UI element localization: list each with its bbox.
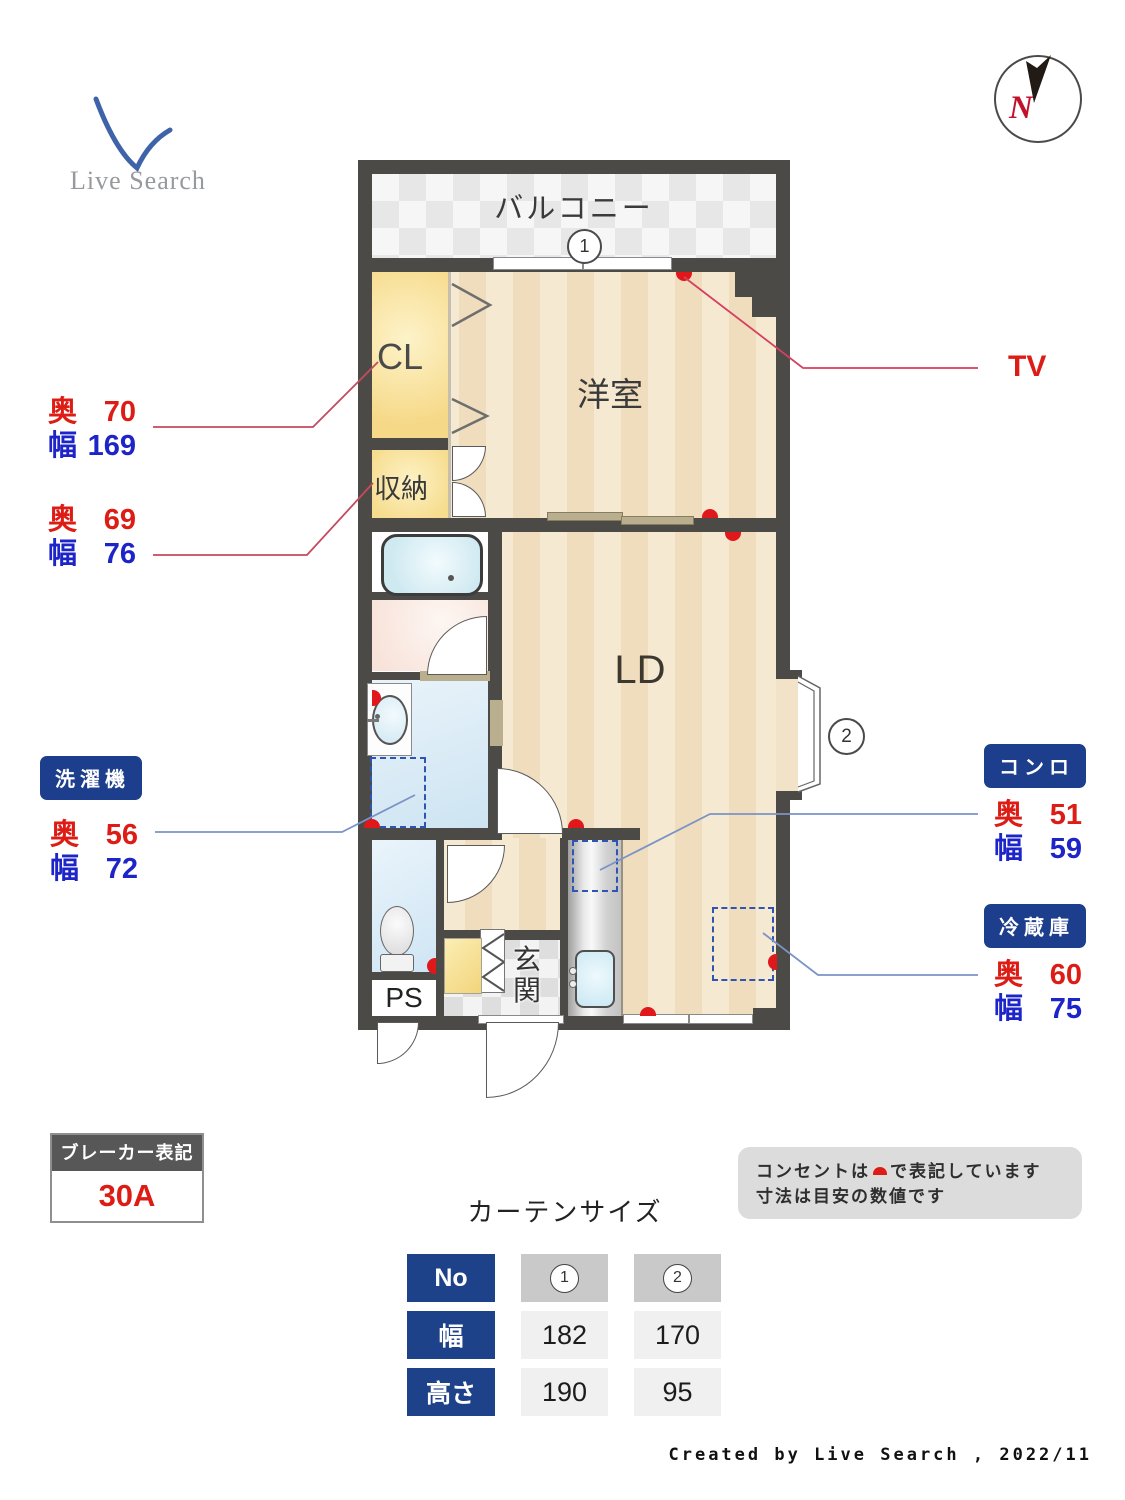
width-value: 59 xyxy=(1050,832,1082,866)
bifold-door-chevrons xyxy=(483,934,504,991)
width-label: 幅 xyxy=(48,429,77,463)
curtain-height-cell-2: 95 xyxy=(634,1368,721,1416)
stove-depth-row: 奥 51 xyxy=(994,798,1082,832)
stove-dimensions: 奥 51 幅 59 xyxy=(994,798,1082,866)
washer-depth-row: 奥 56 xyxy=(50,818,138,852)
note-line-1: コンセントはで表記しています xyxy=(756,1159,1064,1184)
depth-value: 60 xyxy=(1050,958,1082,992)
width-value: 169 xyxy=(88,429,136,463)
leader-storage xyxy=(153,483,373,555)
curtain-row-header-no: No xyxy=(407,1254,495,1302)
closet-dimensions: 奥 70 幅 169 xyxy=(48,395,136,463)
footer-credit: Created by Live Search , 2022/11 xyxy=(600,1445,1092,1465)
depth-value: 56 xyxy=(106,818,138,852)
depth-label: 奥 xyxy=(994,958,1023,992)
width-value: 76 xyxy=(104,537,136,571)
storage-dimensions: 奥 69 幅 76 xyxy=(48,503,136,571)
leader-stove xyxy=(600,814,978,870)
width-value: 72 xyxy=(106,852,138,886)
depth-value: 70 xyxy=(104,395,136,429)
breaker-title: ブレーカー表記 xyxy=(52,1135,202,1171)
stove-width-row: 幅 59 xyxy=(994,832,1082,866)
entrance-label-char2: 関 xyxy=(510,975,544,1006)
washer-badge: 洗濯機 xyxy=(40,756,142,800)
curtain-no-cell-2: 2 xyxy=(634,1254,721,1302)
storage-width-row: 幅 76 xyxy=(48,537,136,571)
curtain-row-header-height: 高さ xyxy=(407,1368,495,1416)
leader-closet xyxy=(153,362,378,427)
note-line-2: 寸法は目安の数値です xyxy=(756,1184,1064,1209)
curtain-table: No 1 2 幅 182 170 高さ 190 95 xyxy=(407,1254,721,1416)
fridge-width-row: 幅 75 xyxy=(994,992,1082,1026)
depth-label: 奥 xyxy=(50,818,79,852)
width-value: 75 xyxy=(1050,992,1082,1026)
curtain-marker-1: 1 xyxy=(550,1264,579,1293)
curtain-marker-2: 2 xyxy=(663,1264,692,1293)
depth-label: 奥 xyxy=(48,395,77,429)
folding-door-chevron-2 xyxy=(452,399,487,433)
depth-value: 51 xyxy=(1050,798,1082,832)
tv-label: TV xyxy=(1008,350,1046,384)
closet-width-row: 幅 169 xyxy=(48,429,136,463)
fridge-dimensions: 奥 60 幅 75 xyxy=(994,958,1082,1026)
width-label: 幅 xyxy=(994,992,1023,1026)
leader-tv xyxy=(684,277,978,368)
window-marker-2: 2 xyxy=(828,718,865,755)
floorplan-page: Live Search N xyxy=(0,0,1125,1500)
leader-fridge xyxy=(763,933,978,975)
bay-window-frame xyxy=(798,676,820,792)
note-line1-after: で表記しています xyxy=(890,1162,1042,1181)
curtain-width-cell-1: 182 xyxy=(521,1311,608,1359)
curtain-table-title: カーテンサイズ xyxy=(430,1192,700,1229)
stove-badge: コンロ xyxy=(984,744,1086,788)
depth-label: 奥 xyxy=(48,503,77,537)
fridge-depth-row: 奥 60 xyxy=(994,958,1082,992)
width-label: 幅 xyxy=(48,537,77,571)
western-room-label: 洋室 xyxy=(565,368,655,416)
balcony-label: バルコニー xyxy=(372,185,776,227)
washer-width-row: 幅 72 xyxy=(50,852,138,886)
note-line1-before: コンセントは xyxy=(756,1162,870,1181)
storage-depth-row: 奥 69 xyxy=(48,503,136,537)
width-label: 幅 xyxy=(50,852,79,886)
window-marker-1: 1 xyxy=(567,229,602,264)
entrance-label-char1: 玄 xyxy=(510,944,544,975)
closet-depth-row: 奥 70 xyxy=(48,395,136,429)
folding-door-chevron-1 xyxy=(452,284,490,326)
breaker-box: ブレーカー表記 30A xyxy=(50,1133,204,1223)
washer-dimensions: 奥 56 幅 72 xyxy=(50,818,138,886)
note-box: コンセントはで表記しています 寸法は目安の数値です xyxy=(738,1147,1082,1219)
curtain-row-header-width: 幅 xyxy=(407,1311,495,1359)
fridge-badge: 冷蔵庫 xyxy=(984,904,1086,948)
curtain-width-cell-2: 170 xyxy=(634,1311,721,1359)
storage-label: 収納 xyxy=(374,467,428,506)
breaker-value: 30A xyxy=(52,1171,202,1221)
leader-washer xyxy=(155,795,415,832)
curtain-no-cell-1: 1 xyxy=(521,1254,608,1302)
curtain-height-cell-1: 190 xyxy=(521,1368,608,1416)
living-dining-label: LD xyxy=(605,648,675,693)
depth-label: 奥 xyxy=(994,798,1023,832)
pipe-space-label: PS xyxy=(372,982,436,1014)
width-label: 幅 xyxy=(994,832,1023,866)
compass-needle-icon xyxy=(1026,55,1051,103)
depth-value: 69 xyxy=(104,503,136,537)
outlet-symbol-icon xyxy=(873,1167,887,1175)
entrance-label: 玄 関 xyxy=(510,944,544,1006)
closet-label: CL xyxy=(377,336,423,378)
